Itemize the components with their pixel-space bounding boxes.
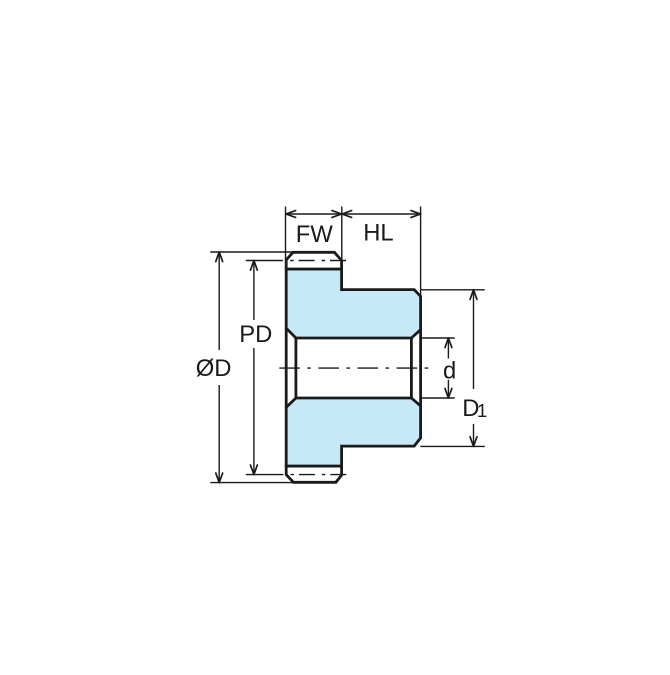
svg-text:ØD: ØD: [196, 355, 232, 382]
svg-text:d: d: [443, 358, 456, 385]
svg-text:D1: D1: [462, 395, 487, 422]
svg-text:HL: HL: [363, 219, 393, 246]
svg-text:PD: PD: [239, 321, 272, 348]
svg-text:FW: FW: [296, 221, 334, 248]
